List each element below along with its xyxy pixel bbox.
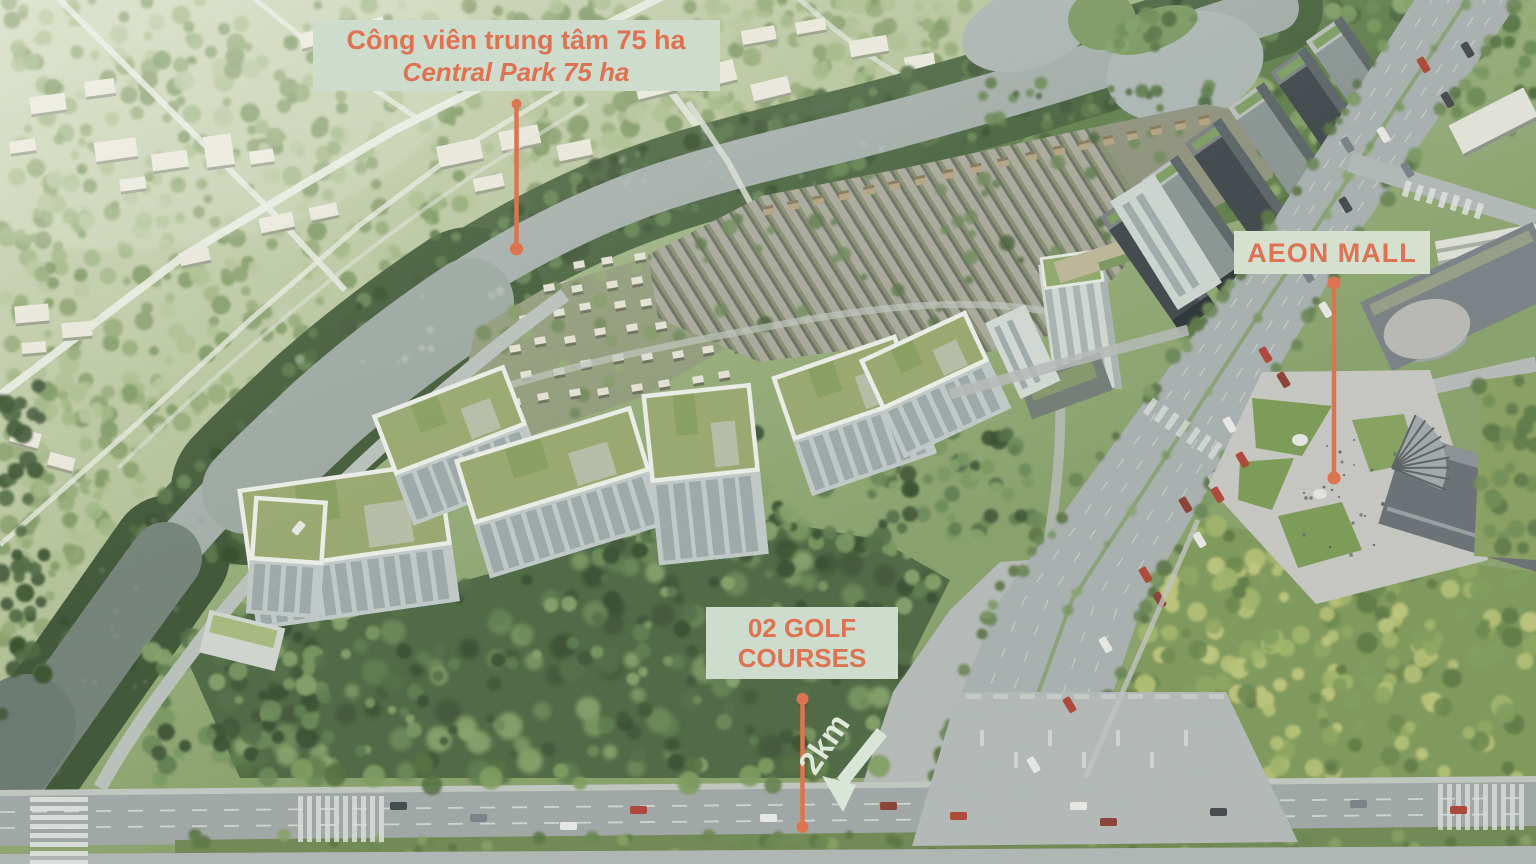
svg-text:COURSES: COURSES: [738, 643, 867, 673]
svg-text:Central Park 75 ha: Central Park 75 ha: [403, 57, 630, 87]
svg-text:AEON MALL: AEON MALL: [1247, 238, 1416, 268]
svg-text:02 GOLF: 02 GOLF: [748, 613, 856, 643]
svg-text:Công viên trung tâm 75 ha: Công viên trung tâm 75 ha: [346, 25, 686, 55]
